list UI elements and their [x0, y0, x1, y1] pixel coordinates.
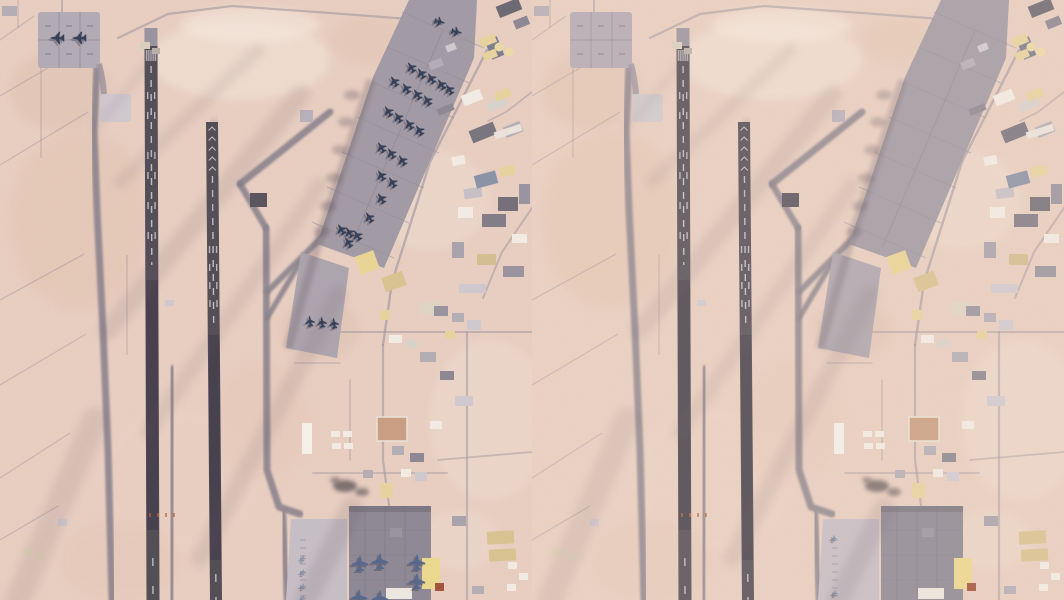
right-panel-haze-overlay [532, 0, 1064, 600]
satellite-panel-right [532, 0, 1064, 600]
satellite-comparison [0, 0, 1064, 600]
satellite-panel-left [0, 0, 532, 600]
